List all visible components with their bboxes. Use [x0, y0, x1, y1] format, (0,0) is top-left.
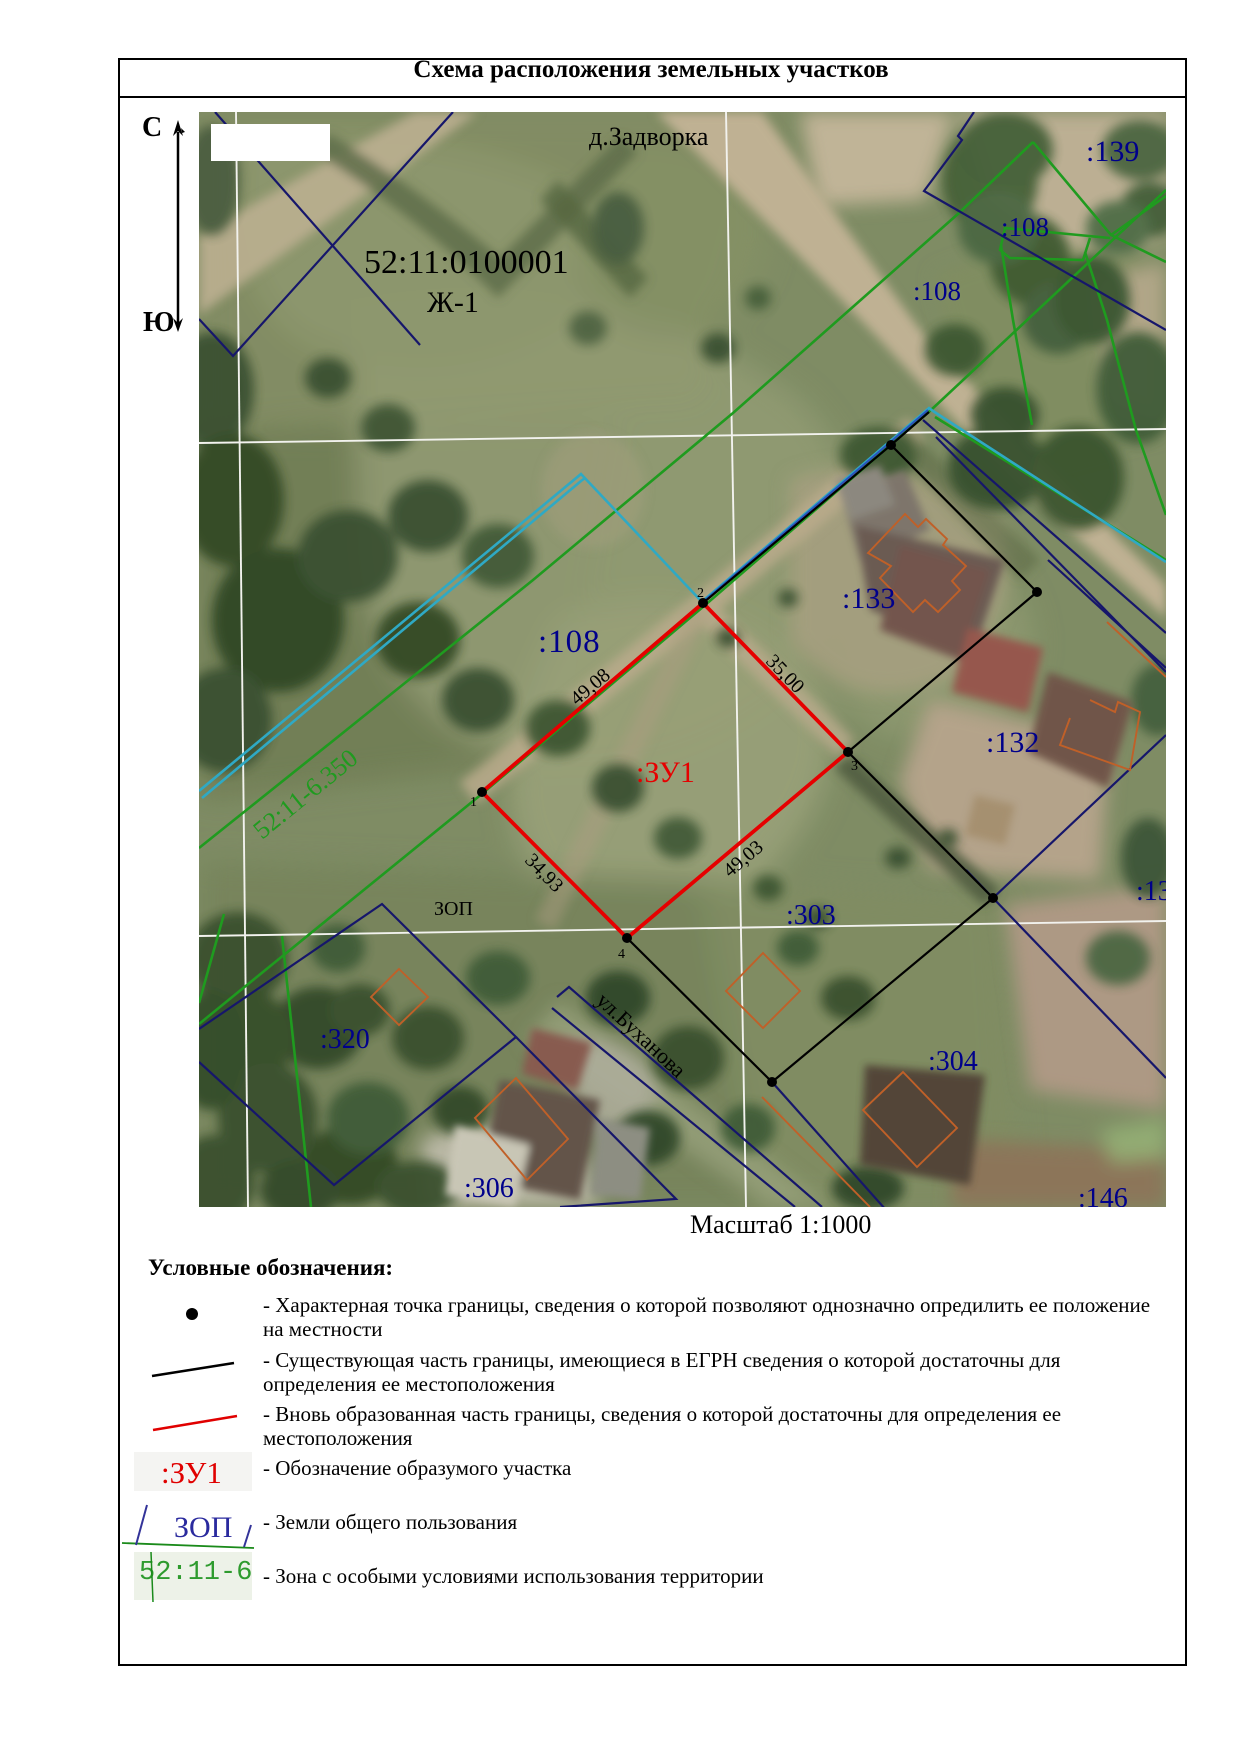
svg-text::13: :13 [1136, 876, 1166, 907]
svg-text::304: :304 [928, 1046, 978, 1077]
svg-text::108: :108 [538, 624, 601, 660]
svg-text::306: :306 [464, 1173, 514, 1204]
svg-text:Ж-1: Ж-1 [427, 286, 479, 319]
svg-text::ЗУ1: :ЗУ1 [636, 756, 695, 789]
svg-text:д.Задворка: д.Задворка [589, 122, 709, 151]
svg-text::108: :108 [1001, 212, 1049, 242]
svg-text:3: 3 [851, 759, 858, 774]
svg-text:ЗОП: ЗОП [174, 1511, 232, 1544]
svg-text:2: 2 [697, 586, 704, 601]
svg-text::303: :303 [786, 900, 836, 931]
svg-text:ЗОП: ЗОП [434, 898, 473, 920]
svg-text::132: :132 [986, 726, 1039, 759]
svg-text::320: :320 [320, 1024, 370, 1055]
svg-text::146: :146 [1078, 1183, 1128, 1207]
svg-text:1: 1 [470, 795, 477, 810]
svg-text::139: :139 [1086, 135, 1139, 168]
svg-text:4: 4 [618, 947, 625, 962]
svg-text:52:11:0100001: 52:11:0100001 [364, 244, 569, 281]
svg-text::133: :133 [842, 582, 895, 615]
svg-text::108: :108 [913, 276, 961, 306]
